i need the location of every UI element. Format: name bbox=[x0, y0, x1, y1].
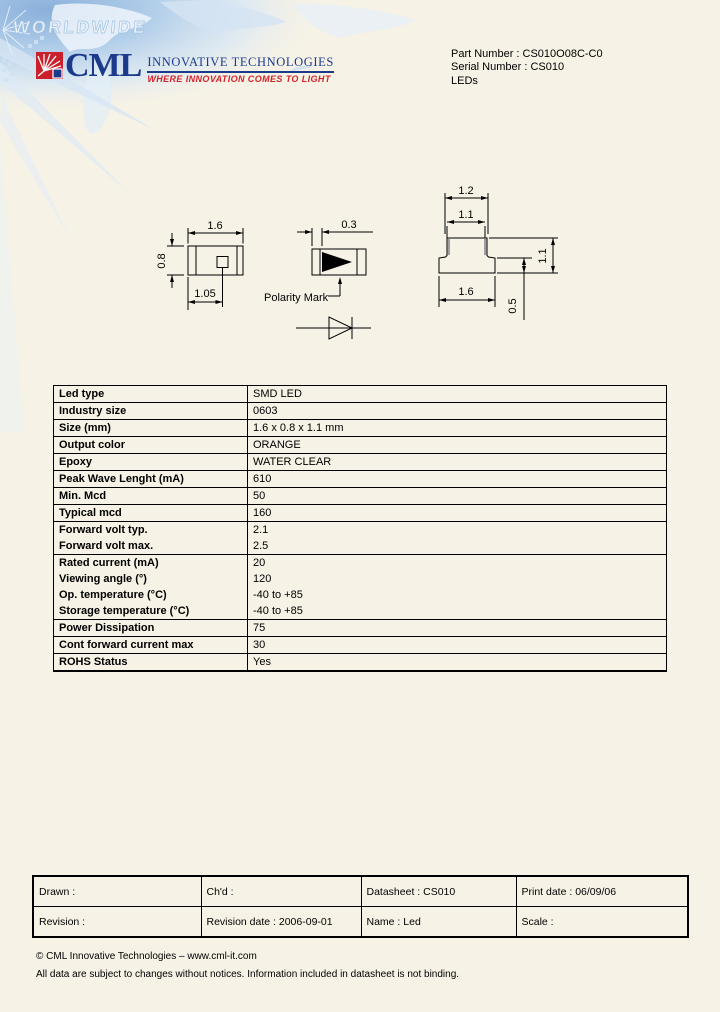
table-row: Peak Wave Lenght (mA)610 bbox=[54, 471, 667, 488]
copyright-line: © CML Innovative Technologies – www.cml-… bbox=[36, 951, 257, 962]
part-number: Part Number : CS010O08C-C0 bbox=[451, 48, 603, 61]
table-row: Size (mm)1.6 x 0.8 x 1.1 mm bbox=[54, 420, 667, 437]
serial-number: Serial Number : CS010 bbox=[451, 61, 603, 74]
datasheet-cell: Datasheet : CS010 bbox=[361, 876, 516, 907]
table-row: Op. temperature (°C)-40 to +85 bbox=[54, 587, 667, 603]
polarity-mark-triangle bbox=[322, 252, 352, 272]
spec-label: Power Dissipation bbox=[54, 620, 248, 637]
spec-label: Size (mm) bbox=[54, 420, 248, 437]
dim-side-top-width: 1.2 bbox=[458, 185, 473, 197]
table-row: Industry size0603 bbox=[54, 403, 667, 420]
spec-value: -40 to +85 bbox=[248, 587, 667, 603]
revision-date-cell: Revision date : 2006-09-01 bbox=[201, 907, 361, 938]
spec-value: -40 to +85 bbox=[248, 603, 667, 620]
name-cell: Name : Led bbox=[361, 907, 516, 938]
dim-side-base-height: 0.5 bbox=[507, 298, 519, 313]
table-row: Storage temperature (°C)-40 to +85 bbox=[54, 603, 667, 620]
dim-top-pad: 1.05 bbox=[194, 288, 215, 300]
datasheet-page: { "colors":{ "page_bg":"#f6f2e6", "brand… bbox=[0, 0, 720, 1012]
disclaimer-line: All data are subject to changes without … bbox=[36, 969, 459, 980]
spec-value: 30 bbox=[248, 637, 667, 654]
spec-value: 1.6 x 0.8 x 1.1 mm bbox=[248, 420, 667, 437]
spec-label: Industry size bbox=[54, 403, 248, 420]
drawn-cell: Drawn : bbox=[33, 876, 201, 907]
spec-label: Storage temperature (°C) bbox=[54, 603, 248, 620]
spec-value: WATER CLEAR bbox=[248, 454, 667, 471]
spec-label: Forward volt typ. bbox=[54, 522, 248, 539]
spec-label: Min. Mcd bbox=[54, 488, 248, 505]
spec-value: 160 bbox=[248, 505, 667, 522]
table-row: Power Dissipation75 bbox=[54, 620, 667, 637]
spec-value: 50 bbox=[248, 488, 667, 505]
spec-value: SMD LED bbox=[248, 386, 667, 403]
spec-value: 0603 bbox=[248, 403, 667, 420]
spec-label: Output color bbox=[54, 437, 248, 454]
table-row: Cont forward current max30 bbox=[54, 637, 667, 654]
spec-label: Forward volt max. bbox=[54, 538, 248, 555]
scale-cell: Scale : bbox=[516, 907, 688, 938]
dim-side-height: 1.1 bbox=[537, 248, 549, 263]
table-row: Output colorORANGE bbox=[54, 437, 667, 454]
title-block-table: Drawn : Ch'd : Datasheet : CS010 Print d… bbox=[32, 875, 689, 938]
print-date-cell: Print date : 06/09/06 bbox=[516, 876, 688, 907]
table-row: EpoxyWATER CLEAR bbox=[54, 454, 667, 471]
spec-label: Op. temperature (°C) bbox=[54, 587, 248, 603]
ray-shape bbox=[0, 140, 24, 432]
table-row: Forward volt typ.2.1 bbox=[54, 522, 667, 539]
table-row: Revision : Revision date : 2006-09-01 Na… bbox=[33, 907, 688, 938]
spec-value: 20 bbox=[248, 555, 667, 572]
spec-value: 2.5 bbox=[248, 538, 667, 555]
dim-top-width: 1.6 bbox=[207, 220, 222, 232]
cml-starburst-icon bbox=[36, 52, 63, 79]
table-row: Led typeSMD LED bbox=[54, 386, 667, 403]
spec-label: Viewing angle (°) bbox=[54, 571, 248, 587]
cml-logo: CML INNOVATIVE TECHNOLOGIES WHERE INNOVA… bbox=[36, 52, 334, 84]
logo-slogan-line: WHERE INNOVATION COMES TO LIGHT bbox=[147, 74, 334, 84]
part-info-block: Part Number : CS010O08C-C0 Serial Number… bbox=[451, 48, 603, 88]
checked-cell: Ch'd : bbox=[201, 876, 361, 907]
spec-label: Typical mcd bbox=[54, 505, 248, 522]
logo-company-line: INNOVATIVE TECHNOLOGIES bbox=[147, 55, 334, 73]
table-row: Forward volt max.2.5 bbox=[54, 538, 667, 555]
worldwide-watermark: WORLDWIDE bbox=[12, 17, 148, 37]
spec-value: 2.1 bbox=[248, 522, 667, 539]
polarity-mark-label: Polarity Mark bbox=[264, 292, 329, 304]
dim-top-height: 0.8 bbox=[156, 253, 168, 268]
spec-table: Led typeSMD LED Industry size0603 Size (… bbox=[53, 385, 667, 672]
category-label: LEDs bbox=[451, 75, 603, 88]
cml-wordmark: CML bbox=[65, 52, 141, 79]
table-row: Rated current (mA)20 bbox=[54, 555, 667, 572]
dim-side-inner-width: 1.1 bbox=[458, 209, 473, 221]
diode-symbol-icon bbox=[296, 317, 371, 339]
spec-label: Epoxy bbox=[54, 454, 248, 471]
spec-label: Peak Wave Lenght (mA) bbox=[54, 471, 248, 488]
table-row: Drawn : Ch'd : Datasheet : CS010 Print d… bbox=[33, 876, 688, 907]
spec-value: 120 bbox=[248, 571, 667, 587]
dim-pad-width: 0.3 bbox=[341, 219, 356, 231]
spec-value: 610 bbox=[248, 471, 667, 488]
spec-label: Led type bbox=[54, 386, 248, 403]
table-row: Min. Mcd50 bbox=[54, 488, 667, 505]
spec-label: Rated current (mA) bbox=[54, 555, 248, 572]
spec-label: Cont forward current max bbox=[54, 637, 248, 654]
terminal-shading bbox=[448, 239, 486, 255]
table-row: Viewing angle (°)120 bbox=[54, 571, 667, 587]
revision-cell: Revision : bbox=[33, 907, 201, 938]
table-row: ROHS StatusYes bbox=[54, 654, 667, 672]
spec-label: ROHS Status bbox=[54, 654, 248, 672]
package-drawings: 1.6 0.8 1.05 0.3 Polarity Mark bbox=[150, 170, 570, 350]
spec-value: 75 bbox=[248, 620, 667, 637]
table-row: Typical mcd160 bbox=[54, 505, 667, 522]
dim-side-bottom-width: 1.6 bbox=[458, 286, 473, 298]
spec-value: ORANGE bbox=[248, 437, 667, 454]
logo-taglines: INNOVATIVE TECHNOLOGIES WHERE INNOVATION… bbox=[147, 52, 334, 84]
spec-value: Yes bbox=[248, 654, 667, 672]
